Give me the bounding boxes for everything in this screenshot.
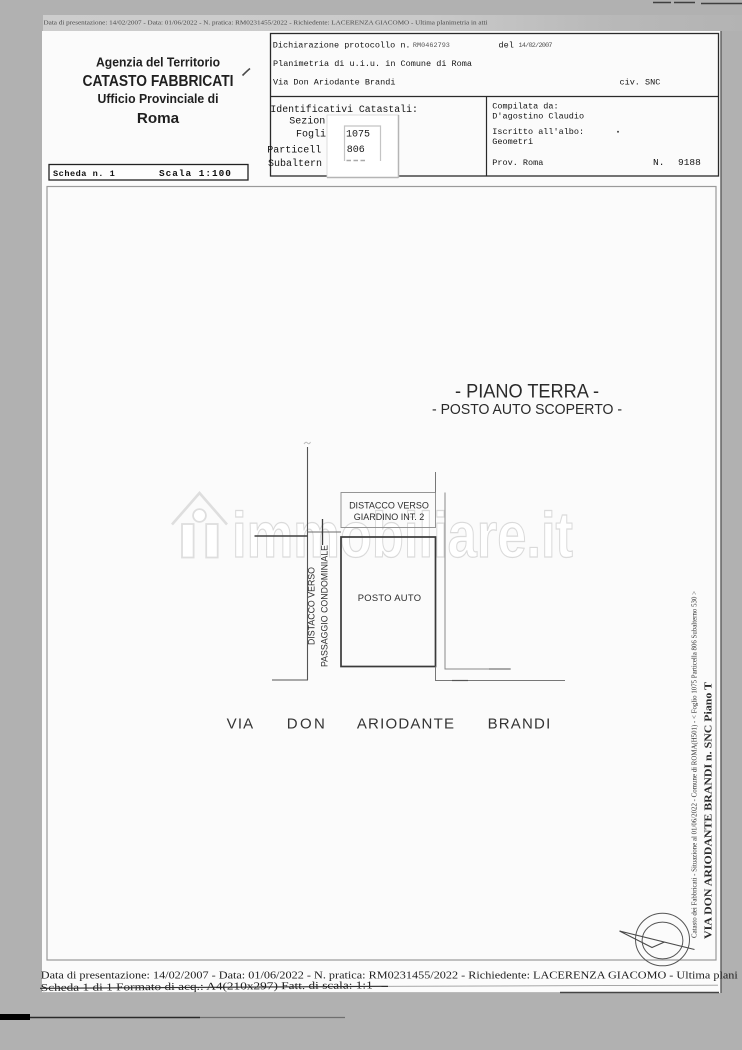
svg-text:N.: N.: [653, 157, 664, 168]
svg-text:Subaltern: Subaltern: [268, 158, 322, 170]
svg-text:Via Don Ariodante Brandi: Via Don Ariodante Brandi: [273, 78, 395, 88]
svg-text:VIA DON ARIODANTE BRANDI n. SN: VIA DON ARIODANTE BRANDI n. SNC Piano T: [704, 682, 715, 939]
svg-text:DISTACCO VERSO: DISTACCO VERSO: [307, 567, 317, 645]
svg-text:- PIANO TERRA -: - PIANO TERRA -: [455, 381, 599, 403]
svg-text:1075: 1075: [346, 129, 370, 140]
svg-text:Particell: Particell: [267, 144, 321, 156]
svg-text:Prov. Roma: Prov. Roma: [492, 158, 543, 168]
svg-text:ARIODANTE: ARIODANTE: [357, 716, 455, 733]
svg-text:DISTACCO VERSO: DISTACCO VERSO: [349, 501, 429, 511]
svg-text:civ. SNC: civ. SNC: [620, 78, 661, 88]
svg-text:Ufficio Provinciale di: Ufficio Provinciale di: [98, 92, 219, 106]
svg-text:Geometri: Geometri: [492, 137, 533, 147]
svg-text:DON: DON: [287, 716, 328, 733]
svg-text:Scala 1:100: Scala 1:100: [159, 168, 232, 179]
svg-text:Compilata da:: Compilata da:: [492, 102, 558, 112]
svg-text:Iscritto all'albo:: Iscritto all'albo:: [492, 127, 584, 137]
svg-text:VIA: VIA: [227, 716, 255, 733]
svg-text:Sezion: Sezion: [289, 116, 325, 128]
svg-text:9188: 9188: [678, 157, 701, 168]
svg-text:POSTO AUTO: POSTO AUTO: [358, 592, 422, 603]
svg-text:806: 806: [347, 145, 365, 156]
svg-text:14/02/2007: 14/02/2007: [519, 42, 553, 50]
svg-text:Identificativi Catastali:: Identificativi Catastali:: [270, 104, 418, 116]
svg-text:Roma: Roma: [137, 110, 180, 127]
svg-text:CATASTO FABBRICATI: CATASTO FABBRICATI: [83, 73, 234, 90]
svg-text:- POSTO AUTO SCOPERTO -: - POSTO AUTO SCOPERTO -: [432, 402, 622, 418]
svg-text:Scheda n. 1: Scheda n. 1: [53, 169, 115, 179]
svg-text:Catasto dei Fabbricati - Situa: Catasto dei Fabbricati - Situazione al 0…: [691, 591, 699, 938]
svg-text:D'agostino Claudio: D'agostino Claudio: [492, 112, 584, 122]
svg-text:del: del: [499, 41, 514, 51]
svg-text:Dichiarazione protocollo n.: Dichiarazione protocollo n.: [273, 41, 411, 51]
svg-text:Data di presentazione: 14/02/2: Data di presentazione: 14/02/2007 - Data…: [41, 970, 738, 982]
svg-text:Data di presentazione: 14/02/2: Data di presentazione: 14/02/2007 - Data…: [44, 20, 488, 27]
svg-text:Fogli: Fogli: [296, 129, 326, 141]
svg-text:RM0462793: RM0462793: [413, 42, 450, 50]
svg-text:PASSAGGIO CONDOMINIALE: PASSAGGIO CONDOMINIALE: [320, 545, 330, 667]
svg-text:Planimetria di u.i.u. in Comun: Planimetria di u.i.u. in Comune di Roma: [273, 59, 472, 69]
svg-text:GIARDINO INT. 2: GIARDINO INT. 2: [354, 512, 425, 522]
svg-text:Agenzia del Territorio: Agenzia del Territorio: [96, 56, 220, 70]
svg-text:BRANDI: BRANDI: [488, 716, 552, 733]
